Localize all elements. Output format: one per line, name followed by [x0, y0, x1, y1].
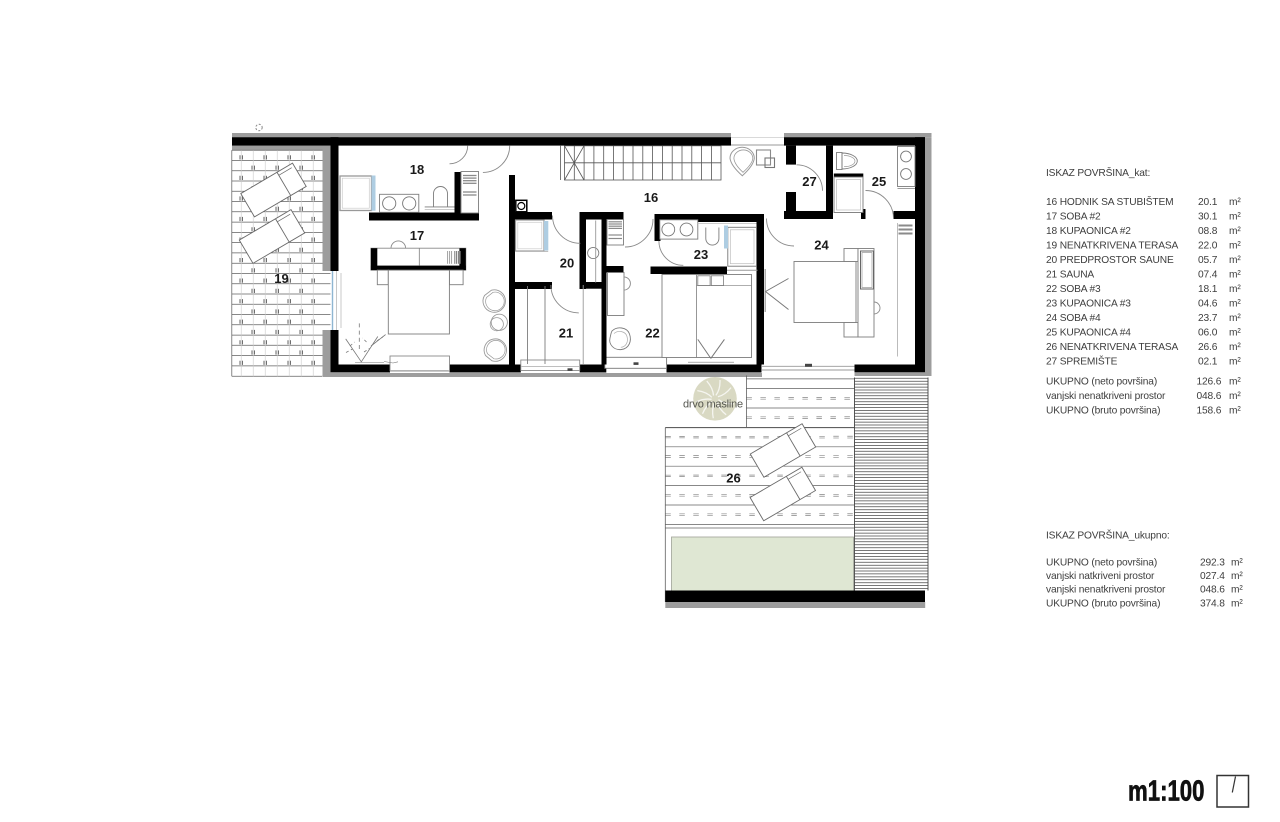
svg-text:08.8: 08.8 — [1198, 226, 1218, 237]
svg-text:06.0: 06.0 — [1198, 327, 1218, 338]
svg-text:17: 17 — [410, 228, 424, 243]
svg-text:292.3: 292.3 — [1200, 558, 1225, 569]
svg-text:30.1: 30.1 — [1198, 211, 1218, 222]
svg-text:m²: m² — [1231, 558, 1243, 569]
svg-text:22.0: 22.0 — [1198, 240, 1218, 251]
svg-text:04.6: 04.6 — [1198, 298, 1218, 309]
svg-text:158.6: 158.6 — [1197, 405, 1222, 416]
svg-text:25 KUPAONICA #4: 25 KUPAONICA #4 — [1046, 327, 1131, 338]
svg-text:26 NENATKRIVENA TERASA: 26 NENATKRIVENA TERASA — [1046, 342, 1179, 353]
svg-text:23 KUPAONICA #3: 23 KUPAONICA #3 — [1046, 298, 1131, 309]
svg-text:21: 21 — [559, 326, 573, 341]
svg-text:18 KUPAONICA #2: 18 KUPAONICA #2 — [1046, 226, 1131, 237]
svg-text:m²: m² — [1229, 298, 1241, 309]
svg-text:m²: m² — [1229, 197, 1241, 208]
svg-text:19 NENATKRIVENA TERASA: 19 NENATKRIVENA TERASA — [1046, 240, 1179, 251]
svg-text:m²: m² — [1229, 255, 1241, 266]
svg-text:m²: m² — [1229, 391, 1241, 402]
svg-text:07.4: 07.4 — [1198, 269, 1218, 280]
svg-text:UKUPNO (bruto površina): UKUPNO (bruto površina) — [1046, 405, 1160, 416]
svg-text:m²: m² — [1229, 313, 1241, 324]
svg-text:05.7: 05.7 — [1198, 255, 1218, 266]
svg-text:23.7: 23.7 — [1198, 313, 1218, 324]
svg-text:m²: m² — [1229, 342, 1241, 353]
svg-text:24 SOBA #4: 24 SOBA #4 — [1046, 313, 1101, 324]
svg-text:26: 26 — [726, 471, 740, 486]
svg-text:m²: m² — [1229, 327, 1241, 338]
svg-text:22 SOBA #3: 22 SOBA #3 — [1046, 284, 1101, 295]
svg-text:m²: m² — [1231, 585, 1243, 596]
svg-text:23: 23 — [694, 247, 708, 262]
svg-text:25: 25 — [872, 174, 886, 189]
svg-text:16: 16 — [644, 190, 658, 205]
svg-text:m²: m² — [1229, 356, 1241, 367]
svg-text:21 SAUNA: 21 SAUNA — [1046, 269, 1094, 280]
svg-text:374.8: 374.8 — [1200, 598, 1225, 609]
svg-text:m²: m² — [1229, 269, 1241, 280]
svg-text:m²: m² — [1231, 571, 1243, 582]
svg-text:m²: m² — [1229, 284, 1241, 295]
svg-text:20 PREDPROSTOR SAUNE: 20 PREDPROSTOR SAUNE — [1046, 255, 1174, 266]
svg-text:ISKAZ POVRŠINA_ukupno:: ISKAZ POVRŠINA_ukupno: — [1046, 529, 1170, 542]
svg-text:drvo masline: drvo masline — [683, 399, 743, 411]
svg-text:vanjski nenatkriveni prostor: vanjski nenatkriveni prostor — [1046, 391, 1166, 402]
svg-text:m²: m² — [1229, 226, 1241, 237]
svg-text:27: 27 — [802, 174, 816, 189]
svg-text:02.1: 02.1 — [1198, 356, 1218, 367]
svg-text:19: 19 — [274, 271, 288, 286]
svg-text:vanjski nenatkriveni prostor: vanjski nenatkriveni prostor — [1046, 585, 1166, 596]
svg-text:027.4: 027.4 — [1200, 571, 1225, 582]
svg-text:m1:100: m1:100 — [1128, 776, 1205, 808]
svg-text:20.1: 20.1 — [1198, 197, 1218, 208]
svg-text:UKUPNO (neto površina): UKUPNO (neto površina) — [1046, 376, 1157, 387]
svg-text:vanjski natkriveni prostor: vanjski natkriveni prostor — [1046, 571, 1155, 582]
svg-text:m²: m² — [1231, 598, 1243, 609]
svg-text:126.6: 126.6 — [1197, 376, 1222, 387]
svg-text:048.6: 048.6 — [1200, 585, 1225, 596]
svg-text:22: 22 — [645, 326, 659, 341]
svg-text:UKUPNO (neto površina): UKUPNO (neto površina) — [1046, 558, 1157, 569]
svg-text:16 HODNIK SA STUBIŠTEM: 16 HODNIK SA STUBIŠTEM — [1046, 195, 1173, 208]
svg-text:048.6: 048.6 — [1197, 391, 1222, 402]
svg-text:m²: m² — [1229, 211, 1241, 222]
svg-text:17 SOBA #2: 17 SOBA #2 — [1046, 211, 1101, 222]
svg-text:m²: m² — [1229, 240, 1241, 251]
svg-text:27 SPREMIŠTE: 27 SPREMIŠTE — [1046, 354, 1118, 367]
svg-text:m²: m² — [1229, 376, 1241, 387]
svg-text:24: 24 — [814, 238, 829, 253]
svg-text:UKUPNO (bruto površina): UKUPNO (bruto površina) — [1046, 598, 1160, 609]
svg-text:26.6: 26.6 — [1198, 342, 1218, 353]
svg-text:18.1: 18.1 — [1198, 284, 1218, 295]
svg-text:20: 20 — [560, 256, 574, 271]
svg-text:m²: m² — [1229, 405, 1241, 416]
svg-text:18: 18 — [410, 162, 424, 177]
svg-text:ISKAZ POVRŠINA_kat:: ISKAZ POVRŠINA_kat: — [1046, 166, 1150, 179]
